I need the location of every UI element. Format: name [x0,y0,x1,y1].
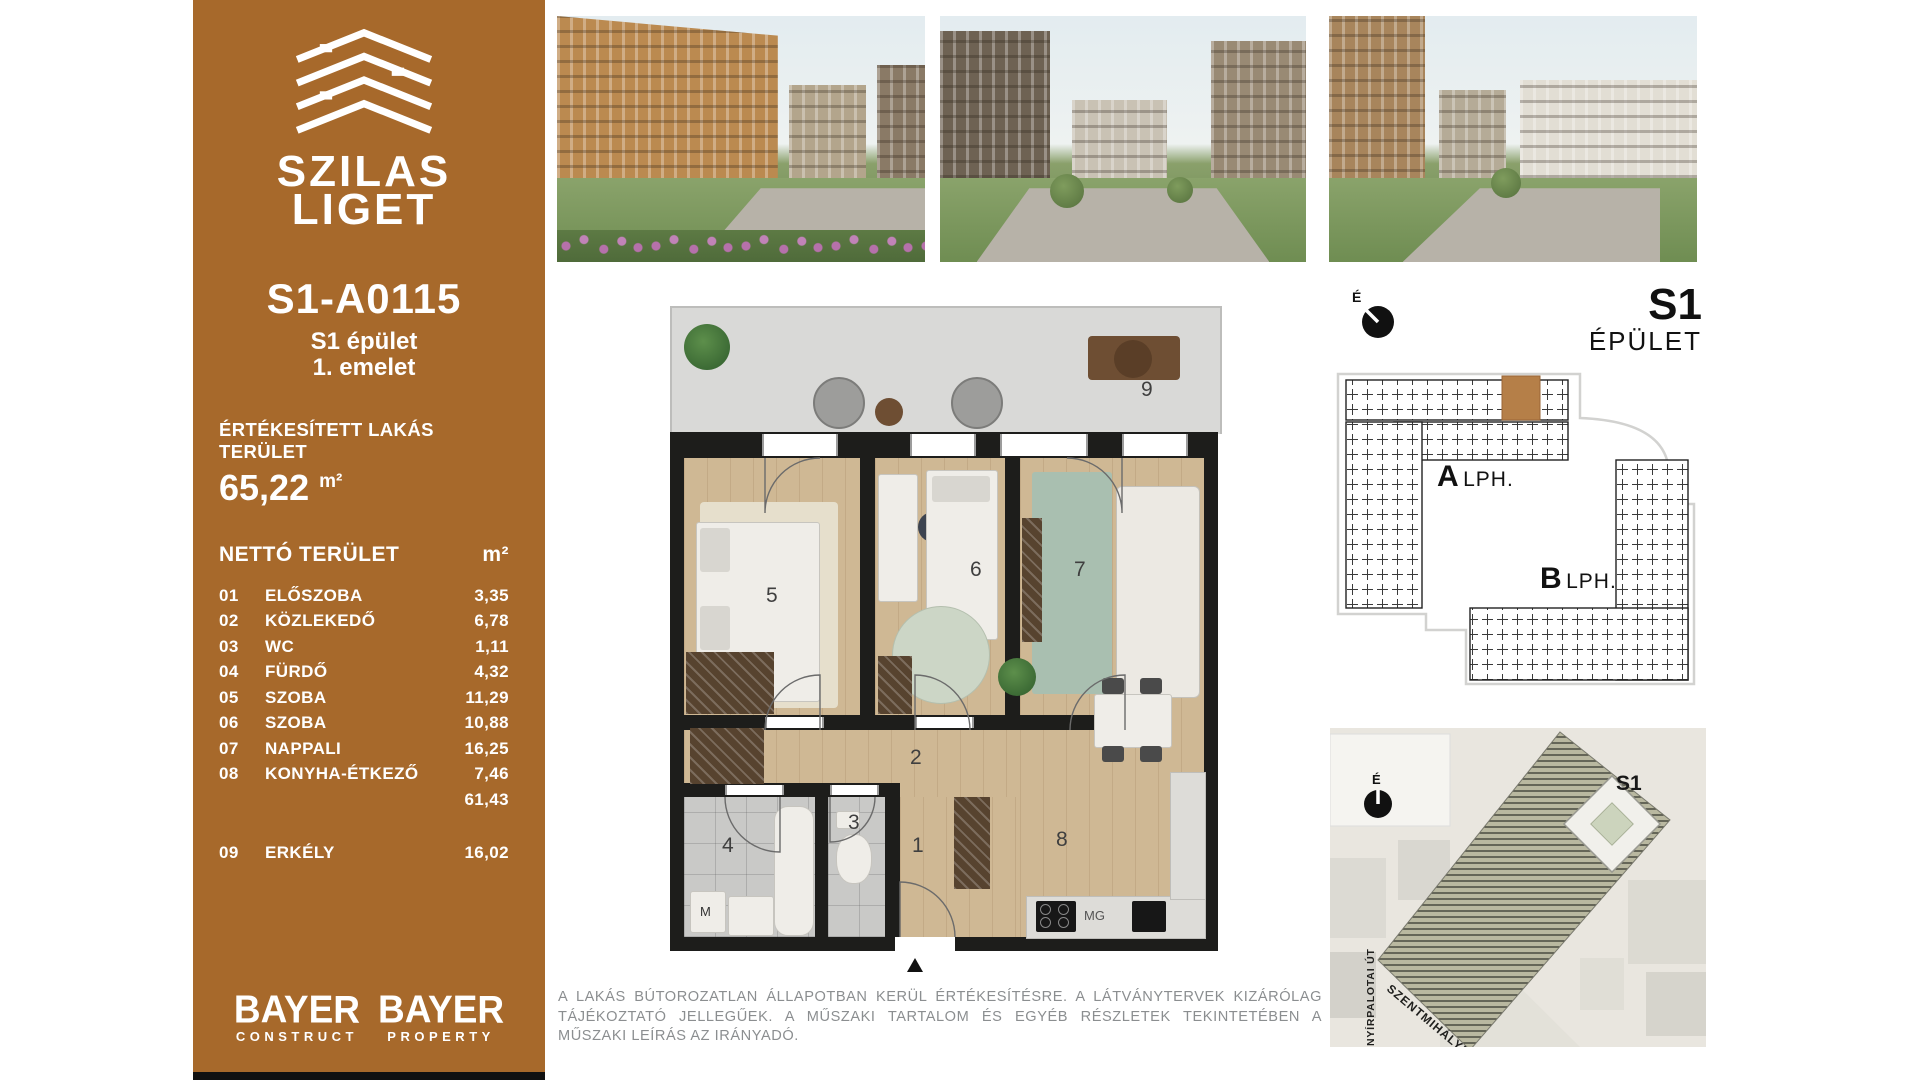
door-opening [725,785,784,795]
kitchen-tall-cabinet [1170,772,1206,900]
table-row: 01ELŐSZOBA3,35 [219,583,509,609]
unit-location: S1 épület 1. emelet [219,329,509,381]
door-opening [830,785,879,795]
pillow [932,476,990,502]
render-flowerbed [557,230,925,262]
sidebar-bottom-strip [193,1072,545,1080]
door-opening [765,717,824,728]
net-area-unit: m² [482,543,509,567]
room-area-table: 01ELŐSZOBA3,35 02KÖZLEKEDŐ6,78 03WC1,11 … [219,583,509,866]
map-building [1580,958,1624,1010]
rug [1032,472,1112,694]
stove-label: MG [1084,908,1105,923]
sold-area-label: ÉRTÉKESÍTETT LAKÁS TERÜLET [219,419,509,463]
table-row: 07NAPPALI16,25 [219,736,509,762]
render-photo-3 [1329,16,1697,262]
datasheet-page: SZILAS LIGET S1-A0115 S1 épület 1. emele… [0,0,1920,1080]
room-number: 2 [910,746,922,770]
dining-chair [1102,678,1124,694]
render-tree [1050,174,1084,208]
highlighted-unit [1502,376,1540,420]
washer-label: M [700,904,711,919]
render-tree [1167,177,1193,203]
street-label-vertical: NYÍRPALOTAI ÚT [1364,948,1377,1046]
pillow [700,528,730,572]
dining-table [1094,694,1172,748]
map-building [1330,858,1386,938]
map-building [1330,734,1450,826]
net-area-label: NETTÓ TERÜLET [219,543,399,567]
dining-chair [1102,746,1124,762]
wall [1204,432,1218,951]
bathtub [774,806,814,936]
wardrobe [878,656,912,714]
room-number: 3 [848,811,860,835]
sidebar: SZILAS LIGET S1-A0115 S1 épület 1. emele… [193,0,545,1080]
site-map: S1 É NYÍRPALOTAI ÚT SZENTMIHÁLYI ÚT [1330,728,1706,1047]
building-panel-title: S1 ÉPÜLET [1520,286,1702,357]
building-floor-overview [1330,372,1702,688]
sold-area-unit: m² [319,471,342,492]
room-number: 6 [970,558,982,582]
compass-north-icon: É [1348,288,1400,344]
sold-area-value: 65,22 m² [219,467,509,509]
wardrobe [686,652,774,714]
desk [878,474,918,602]
stove-icon [1036,901,1076,932]
net-area-header: NETTÓ TERÜLET m² [219,543,509,567]
door-opening [915,717,974,728]
wall [860,458,875,730]
balcony-door [910,434,976,456]
sink [728,896,774,936]
render-photo-2 [940,16,1306,262]
brand-line2: LIGET [219,191,509,229]
room-number: 5 [766,584,778,608]
room-number: 4 [722,834,734,858]
svg-text:É: É [1372,772,1381,787]
staircase-b-label: B LPH. [1540,562,1617,596]
net-subtotal-row: ..61,43 [219,787,509,813]
wardrobe [690,728,764,784]
render-building [1072,100,1167,189]
balcony-chair [813,377,865,429]
room-number-balcony: 9 [1141,378,1153,402]
brand-name: SZILAS LIGET [219,153,509,229]
tv-cabinet [1022,518,1042,642]
wall [670,432,684,951]
room-number: 7 [1074,558,1086,582]
render-photo-1 [557,16,925,262]
table-row: 06SZOBA10,88 [219,711,509,737]
plant [684,324,730,370]
balcony-chair [951,377,1003,429]
wall [815,797,828,937]
toilet [836,834,872,884]
dining-chair [1140,746,1162,762]
entrance-door-opening [895,937,955,951]
render-building [1520,80,1697,178]
unit-floor: 1. emelet [219,355,509,381]
window [1000,434,1088,456]
room-number: 1 [912,834,924,858]
table-row: 08KONYHA-ÉTKEZŐ7,46 [219,762,509,788]
table-row: 02KÖZLEKEDŐ6,78 [219,609,509,635]
building-title: S1 [1520,286,1702,324]
szilas-liget-logo-icon [219,24,509,141]
plant [998,658,1036,696]
balcony-door [1122,434,1188,456]
window [762,434,838,456]
pillow [700,606,730,650]
map-s1-label: S1 [1616,772,1642,795]
svg-text:É: É [1352,289,1361,305]
building-subtitle: ÉPÜLET [1520,326,1702,357]
map-building [1646,972,1706,1036]
bayer-construct-logo: BAYER CONSTRUCT [234,993,360,1044]
render-tree [1491,168,1521,198]
entrance-arrow-icon [907,958,923,972]
sofa [1116,486,1200,698]
kitchen-sink [1132,901,1166,932]
apartment-floorplan: 9 5 6 7 2 1 3 4 8 M MG [670,306,1218,978]
balcony-round-table [1114,340,1152,378]
unit-id: S1-A0115 [219,275,509,323]
table-row: 04FÜRDŐ4,32 [219,660,509,686]
table-row-balcony: 09ERKÉLY16,02 [219,841,509,867]
balcony-table [875,398,903,426]
map-building [1628,880,1706,964]
bayer-property-logo: BAYER PROPERTY [378,993,504,1044]
developer-logos: BAYER CONSTRUCT BAYER PROPERTY [193,993,545,1044]
unit-building: S1 épület [219,329,509,355]
wardrobe [954,797,990,889]
wall [885,797,900,937]
dining-chair [1140,678,1162,694]
disclaimer-text: A LAKÁS BÚTOROZATLAN ÁLLAPOTBAN KERÜL ÉR… [558,988,1322,1047]
table-row: 03WC1,11 [219,634,509,660]
staircase-a-label: A LPH. [1437,460,1514,494]
table-row: 05SZOBA11,29 [219,685,509,711]
room-number: 8 [1056,828,1068,852]
